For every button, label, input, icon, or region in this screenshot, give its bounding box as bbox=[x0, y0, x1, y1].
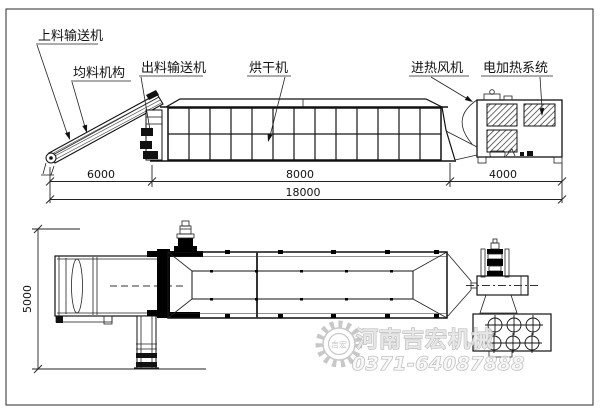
watermark-company-name: 河南吉宏机械 bbox=[356, 327, 494, 353]
dimension-6000: 6000 bbox=[87, 168, 115, 181]
dryer-body bbox=[150, 99, 456, 161]
heater-foot-left bbox=[478, 157, 486, 163]
drum-edge-ticks bbox=[210, 250, 439, 318]
horizontal-dimensions: 6000 8000 4000 18000 bbox=[46, 163, 566, 204]
drum-outlet-cone bbox=[447, 253, 477, 317]
label-hot-air-blower: 进热风机 bbox=[409, 61, 473, 102]
dryer-drum-plan bbox=[147, 221, 477, 318]
hot-air-duct bbox=[446, 100, 477, 160]
dimension-5000: 5000 bbox=[21, 285, 34, 313]
fan-motor-plan bbox=[481, 239, 509, 277]
engineering-drawing-page: 上料输送机 均料机构 出料输送机 烘干机 bbox=[0, 0, 600, 413]
label-feed-conveyor: 上料输送机 bbox=[36, 28, 103, 140]
front-elevation-view: 上料输送机 均料机构 出料输送机 烘干机 bbox=[36, 28, 566, 204]
label-hot-air-blower-text: 进热风机 bbox=[411, 61, 463, 76]
heater-panel-3 bbox=[487, 130, 517, 152]
dryer-grid-lines bbox=[168, 108, 441, 160]
label-leveling-mechanism-text: 均料机构 bbox=[73, 66, 125, 81]
dimension-4000: 4000 bbox=[489, 168, 517, 181]
heater-panel-1 bbox=[487, 104, 517, 126]
drum-inner-panel bbox=[192, 271, 413, 299]
heater-foot-right bbox=[554, 157, 562, 163]
dryer-line-drawing: 上料输送机 均料机构 出料输送机 烘干机 bbox=[0, 0, 600, 413]
label-electric-heating-text: 电加热系统 bbox=[483, 61, 548, 76]
heater-panel-2 bbox=[524, 104, 555, 126]
dimension-8000: 8000 bbox=[286, 168, 314, 181]
discharge-conveyor-plan bbox=[134, 316, 159, 368]
label-dryer: 烘干机 bbox=[247, 61, 291, 142]
dimension-18000: 18000 bbox=[286, 186, 321, 199]
heater-inlet-cone-plan bbox=[480, 295, 517, 313]
watermark-phone-number: 0371-64087888 bbox=[352, 353, 525, 375]
logo-text: 吉宏 bbox=[331, 340, 347, 350]
label-feed-conveyor-text: 上料输送机 bbox=[38, 28, 103, 44]
drum-drive-motor-plan bbox=[174, 221, 197, 252]
electric-heating-unit bbox=[477, 90, 562, 163]
label-dryer-text: 烘干机 bbox=[249, 61, 288, 76]
label-discharge-conveyor-text: 出料输送机 bbox=[141, 60, 206, 76]
drum-outline bbox=[168, 252, 447, 318]
